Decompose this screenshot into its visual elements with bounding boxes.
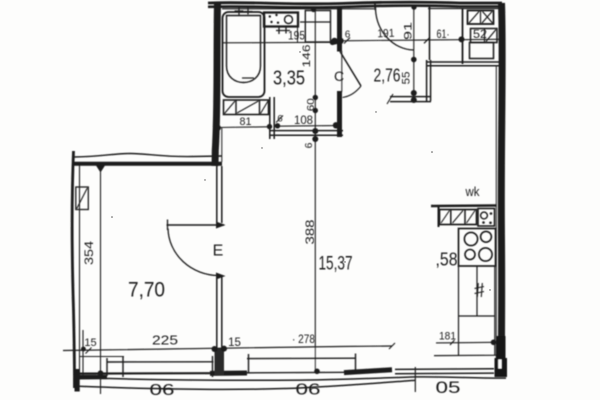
svg-text:191: 191: [377, 28, 394, 41]
svg-text:354: 354: [82, 241, 96, 265]
svg-text:108: 108: [294, 115, 313, 127]
svg-text:15: 15: [228, 337, 241, 349]
svg-text:181: 181: [439, 331, 456, 343]
svg-text:,58: ,58: [436, 250, 458, 270]
svg-text:6: 6: [303, 142, 315, 148]
svg-text:52: 52: [473, 29, 487, 41]
svg-text:3,35: 3,35: [273, 68, 305, 90]
svg-text:60: 60: [305, 98, 317, 111]
svg-text:6: 6: [277, 114, 282, 125]
svg-text:146: 146: [301, 45, 313, 68]
svg-text:15: 15: [84, 337, 96, 349]
svg-text:05: 05: [436, 379, 461, 397]
svg-text:06: 06: [296, 382, 321, 399]
svg-text:195: 195: [288, 31, 305, 43]
svg-text:55: 55: [401, 72, 413, 85]
svg-text:91: 91: [403, 22, 415, 40]
svg-text:06: 06: [150, 382, 175, 399]
svg-text:388: 388: [303, 219, 317, 244]
svg-text:6: 6: [345, 30, 351, 41]
svg-text:C: C: [334, 68, 344, 84]
svg-text:7,70: 7,70: [128, 279, 165, 302]
svg-text:2,76: 2,76: [374, 66, 401, 86]
svg-text:61·: 61·: [437, 29, 450, 41]
svg-text:225: 225: [152, 334, 178, 348]
svg-text:81: 81: [240, 116, 252, 128]
svg-text:· 278: · 278: [292, 332, 315, 346]
svg-text:E: E: [213, 243, 224, 260]
svg-text:wk: wk: [465, 184, 480, 199]
svg-text:15,37: 15,37: [319, 254, 353, 275]
